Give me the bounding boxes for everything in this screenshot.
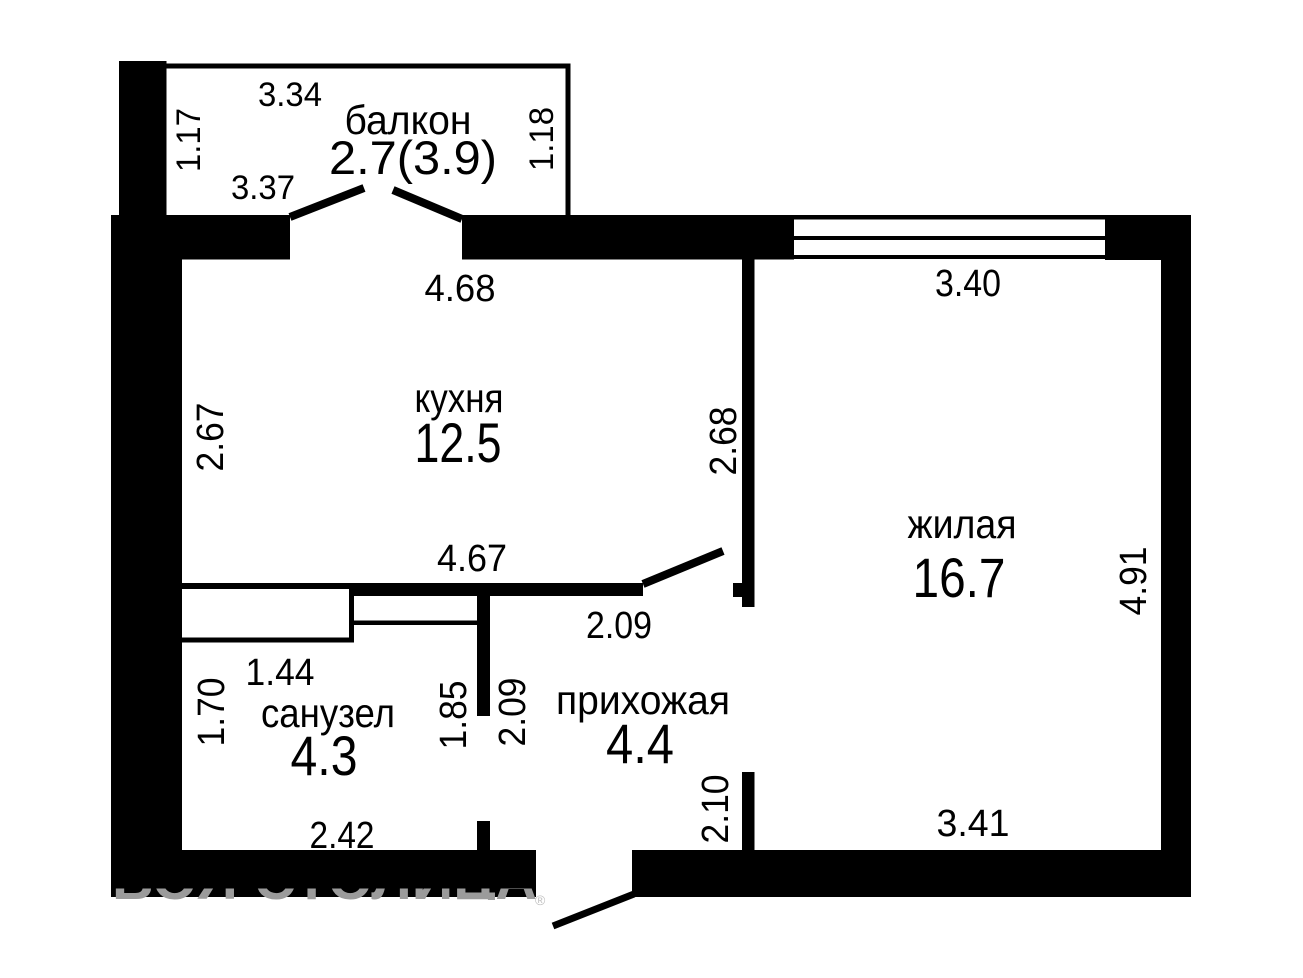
svg-text:1.70: 1.70 xyxy=(191,678,233,747)
svg-text:4.91: 4.91 xyxy=(1113,547,1155,616)
svg-text:3.40: 3.40 xyxy=(935,263,1001,305)
svg-text:2.68: 2.68 xyxy=(703,407,745,476)
svg-text:жилая: жилая xyxy=(908,501,1017,547)
svg-text:2.7(3.9): 2.7(3.9) xyxy=(329,131,497,184)
svg-text:3.37: 3.37 xyxy=(231,169,295,207)
svg-text:2.10: 2.10 xyxy=(695,775,737,844)
svg-text:1.44: 1.44 xyxy=(246,652,315,694)
svg-text:1.18: 1.18 xyxy=(523,107,561,171)
svg-text:3.34: 3.34 xyxy=(258,76,322,114)
svg-text:2.67: 2.67 xyxy=(190,403,232,472)
svg-text:4.3: 4.3 xyxy=(291,724,358,787)
svg-text:12.5: 12.5 xyxy=(415,411,502,474)
svg-text:2.42: 2.42 xyxy=(310,815,375,857)
svg-text:1.17: 1.17 xyxy=(170,108,208,172)
svg-text:®: ® xyxy=(535,892,546,908)
svg-text:1.85: 1.85 xyxy=(433,681,475,750)
svg-text:2.09: 2.09 xyxy=(492,678,534,747)
svg-text:4.4: 4.4 xyxy=(606,712,674,775)
svg-text:4.67: 4.67 xyxy=(437,538,507,580)
svg-text:16.7: 16.7 xyxy=(913,546,1006,609)
svg-text:4.68: 4.68 xyxy=(425,268,496,310)
svg-text:2.09: 2.09 xyxy=(586,605,652,647)
svg-text:3.41: 3.41 xyxy=(937,803,1010,845)
